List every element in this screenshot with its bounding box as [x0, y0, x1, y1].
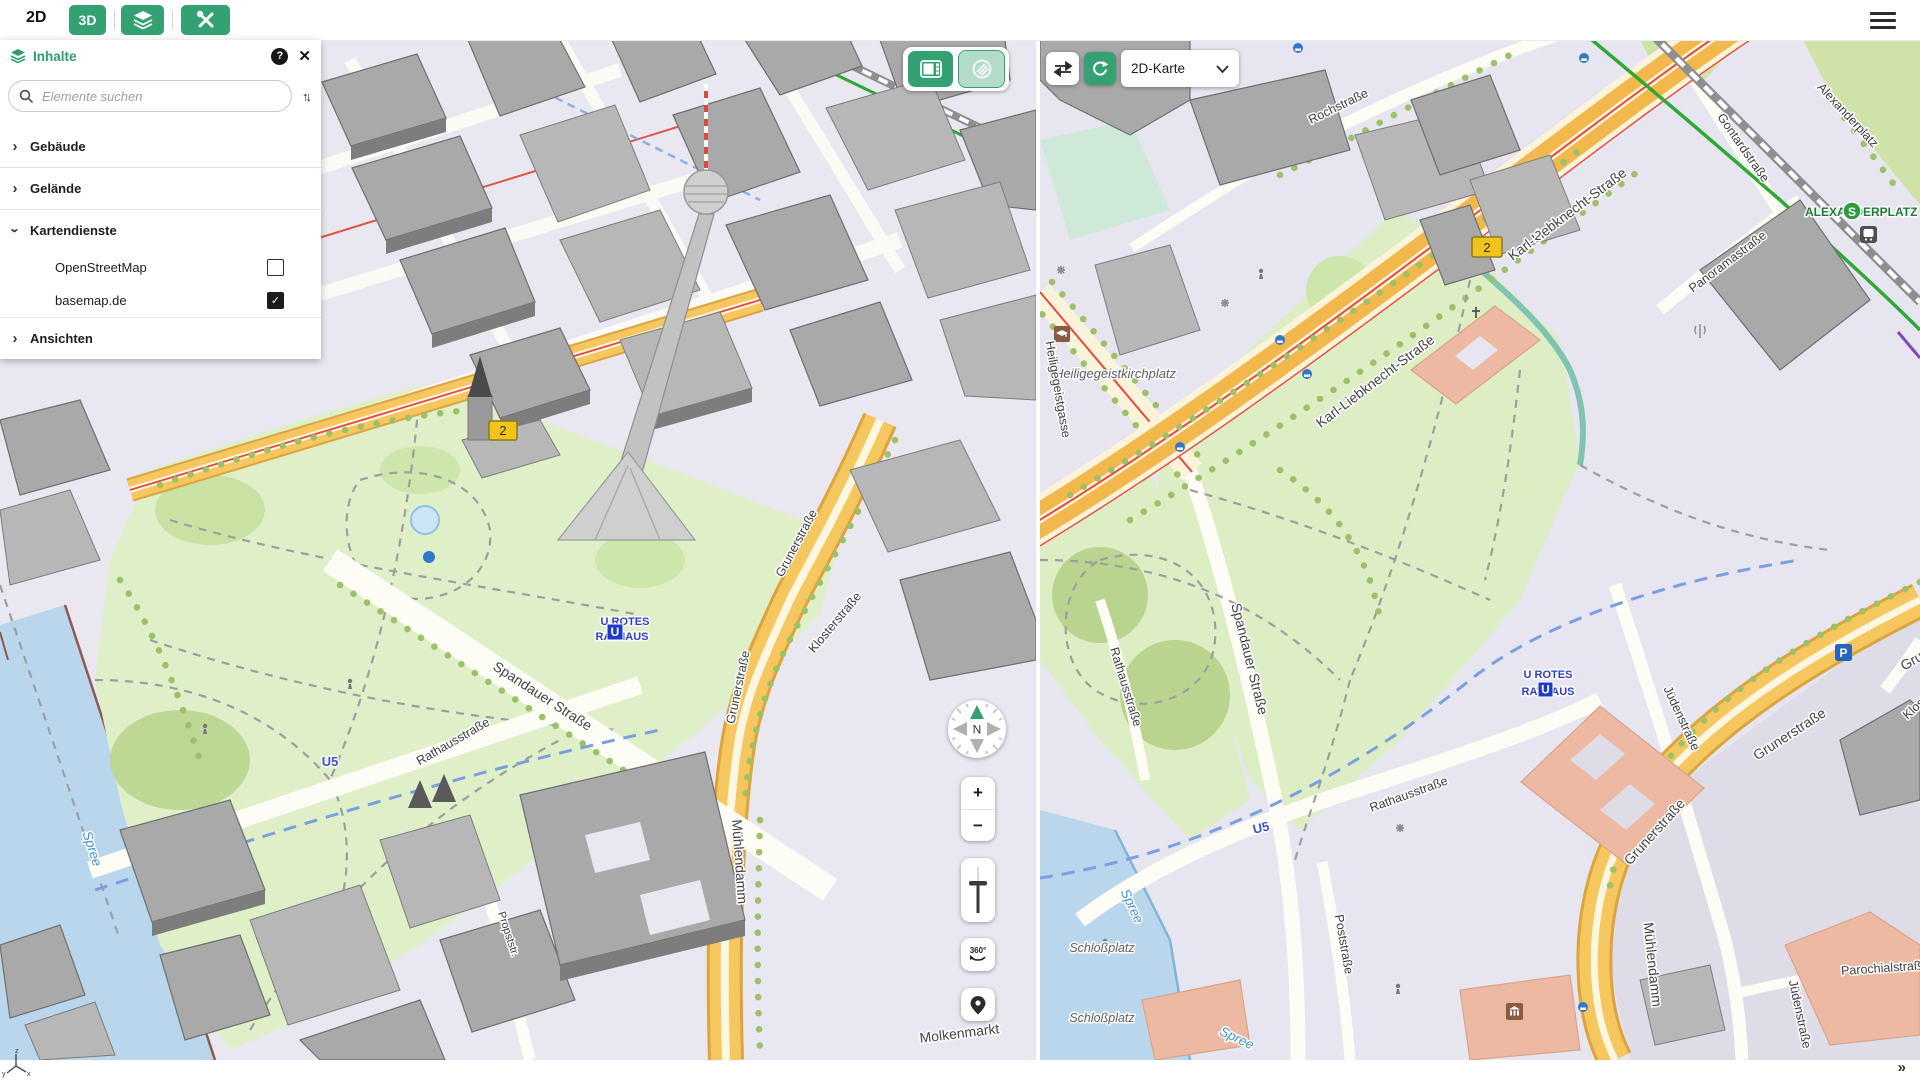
help-button[interactable]: ?: [271, 48, 288, 65]
compass-control[interactable]: N: [948, 700, 1006, 758]
chevron-down-icon: [1216, 65, 1229, 73]
svg-text:U: U: [611, 625, 620, 639]
rotate-360-button[interactable]: 360°: [961, 938, 995, 971]
expand-attribution-button[interactable]: »: [1898, 1059, 1906, 1076]
checkbox-openstreetmap[interactable]: ✓: [267, 259, 284, 276]
compass-north-label: N: [973, 723, 982, 737]
rotate-360-label: 360°: [969, 946, 987, 955]
view-type-select[interactable]: 2D-Karte: [1121, 50, 1239, 87]
top-toolbar: 2D 3D: [0, 0, 1920, 41]
parking-icon: P: [1835, 644, 1852, 661]
location-pin-icon: [969, 995, 987, 1015]
train-station-icon: [1860, 226, 1877, 243]
toolbar-separator: [114, 10, 115, 30]
zoom-out-button[interactable]: −: [961, 810, 995, 842]
ubahn-logo: U: [607, 624, 623, 640]
check-icon: ✓: [271, 294, 280, 307]
compass-north-needle: [970, 705, 984, 719]
svg-text:U5: U5: [322, 754, 339, 769]
tools-icon: [196, 10, 216, 30]
svg-text:U: U: [1541, 683, 1550, 697]
svg-text:z: z: [15, 1048, 19, 1055]
svg-text:U ROTES: U ROTES: [1524, 669, 1573, 681]
svg-text:2: 2: [1535, 229, 1542, 243]
app-window: 2D 3D: [0, 0, 1920, 1080]
svg-text:S: S: [1848, 205, 1856, 219]
tools-button[interactable]: [181, 5, 230, 35]
axis-indicator: z y x: [2, 1048, 32, 1078]
checkbox-basemap-de[interactable]: ✓: [267, 292, 284, 309]
swap-maps-button[interactable]: [1046, 52, 1079, 85]
search-field[interactable]: [8, 80, 292, 112]
tree-item-gelaende[interactable]: › Gelände: [0, 168, 321, 209]
sync-views-button[interactable]: [1084, 52, 1116, 85]
sort-icon[interactable]: ↑↓: [302, 89, 313, 104]
layers-icon: [10, 49, 26, 63]
tree-item-basemap-de[interactable]: basemap.de ✓: [0, 284, 321, 317]
chevron-down-icon: ›: [7, 216, 24, 246]
footer-bar: [0, 1060, 1920, 1080]
tilt-slider[interactable]: [961, 858, 995, 922]
menu-button[interactable]: [1870, 12, 1896, 29]
split-view-icon: [920, 60, 942, 78]
view-type-label: 2D-Karte: [1131, 61, 1216, 76]
tilt-slider-handle[interactable]: [969, 881, 987, 886]
chevron-right-icon: ›: [0, 330, 30, 347]
tree-item-gebaeude[interactable]: › Gebäude: [0, 126, 321, 167]
locate-button[interactable]: [961, 988, 995, 1021]
svg-text:Heiligegeistkirchplatz: Heiligegeistkirchplatz: [1054, 366, 1177, 381]
chevron-right-icon: ›: [0, 180, 30, 197]
search-row: ↑↓: [0, 72, 321, 126]
split-view-button[interactable]: [908, 51, 953, 87]
panel-header: Inhalte ? ✕: [0, 40, 321, 72]
zoom-in-button[interactable]: +: [961, 777, 995, 809]
chevron-right-icon: ›: [0, 138, 30, 155]
view-toggle-group: [903, 47, 1009, 91]
svg-text:y: y: [2, 1071, 6, 1078]
mode-2d-button[interactable]: 2D: [26, 9, 46, 27]
search-input[interactable]: [40, 88, 281, 105]
toolbar-separator: [172, 10, 173, 30]
svg-text:P: P: [1839, 646, 1847, 660]
svg-text:x: x: [27, 1071, 31, 1078]
lens-view-button[interactable]: [959, 51, 1004, 87]
layers-icon: [133, 11, 153, 29]
svg-text:Schloßplatz: Schloßplatz: [1069, 941, 1135, 955]
layers-button[interactable]: [121, 5, 164, 35]
sync-icon: [1091, 60, 1109, 78]
mode-3d-button[interactable]: 3D: [69, 5, 106, 35]
map-2d-pane[interactable]: P Karl-Liebknecht-Straße Karl-Liebknecht…: [1040, 40, 1920, 1060]
contents-panel: Inhalte ? ✕ ↑↓ › Gebäude › Gelände › Kar…: [0, 40, 321, 359]
svg-text:Schloßplatz: Schloßplatz: [1069, 1011, 1135, 1025]
zoom-control: + −: [961, 777, 995, 841]
route-2-badge: 2: [489, 421, 517, 440]
museum-icon: [1506, 1003, 1523, 1020]
panel-title: Inhalte: [33, 49, 271, 64]
map-2d-canvas[interactable]: P Karl-Liebknecht-Straße Karl-Liebknecht…: [1040, 40, 1920, 1060]
swap-arrows-icon: [1053, 61, 1073, 77]
svg-text:2: 2: [499, 423, 506, 438]
sbahn-station-label: ALEXANDERPLATZ S: [1805, 202, 1917, 220]
tree-item-kartendienste[interactable]: › Kartendienste: [0, 210, 321, 251]
close-panel-button[interactable]: ✕: [298, 47, 311, 65]
ubahn-logo: U: [1538, 682, 1553, 697]
tree-item-ansichten[interactable]: › Ansichten: [0, 318, 321, 359]
tree-item-openstreetmap[interactable]: OpenStreetMap ✓: [0, 251, 321, 284]
lens-icon: [971, 58, 993, 80]
search-icon: [19, 89, 33, 103]
svg-text:2: 2: [1483, 240, 1490, 255]
